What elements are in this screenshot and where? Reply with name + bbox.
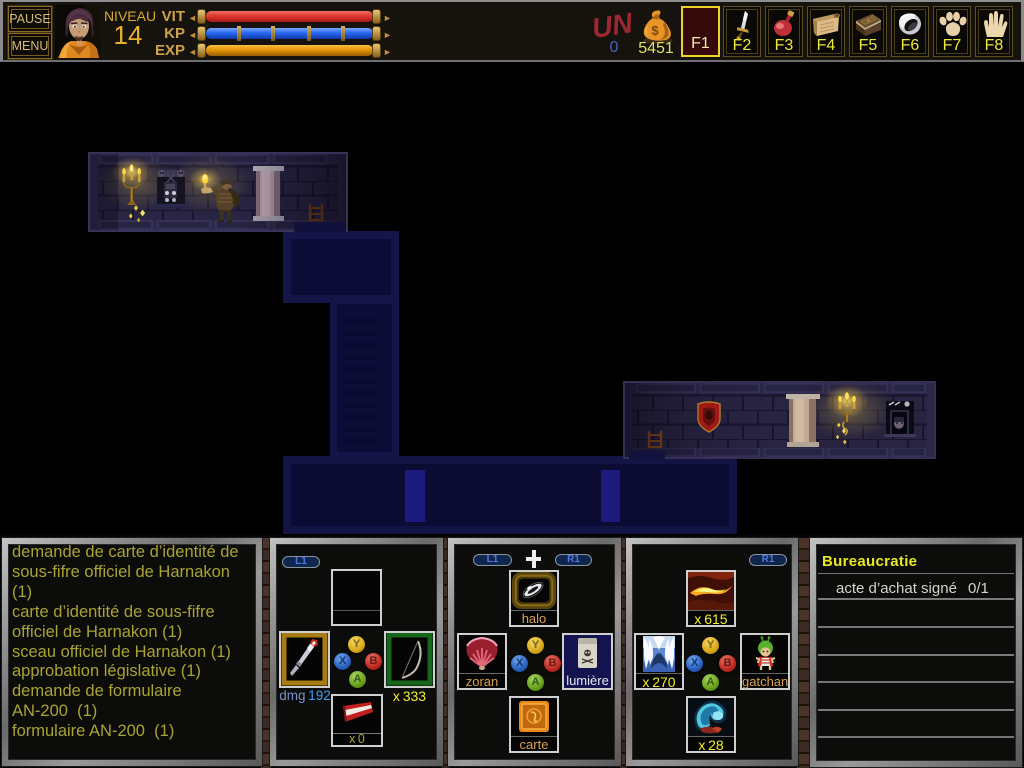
svg-text:$: $ (651, 23, 659, 38)
